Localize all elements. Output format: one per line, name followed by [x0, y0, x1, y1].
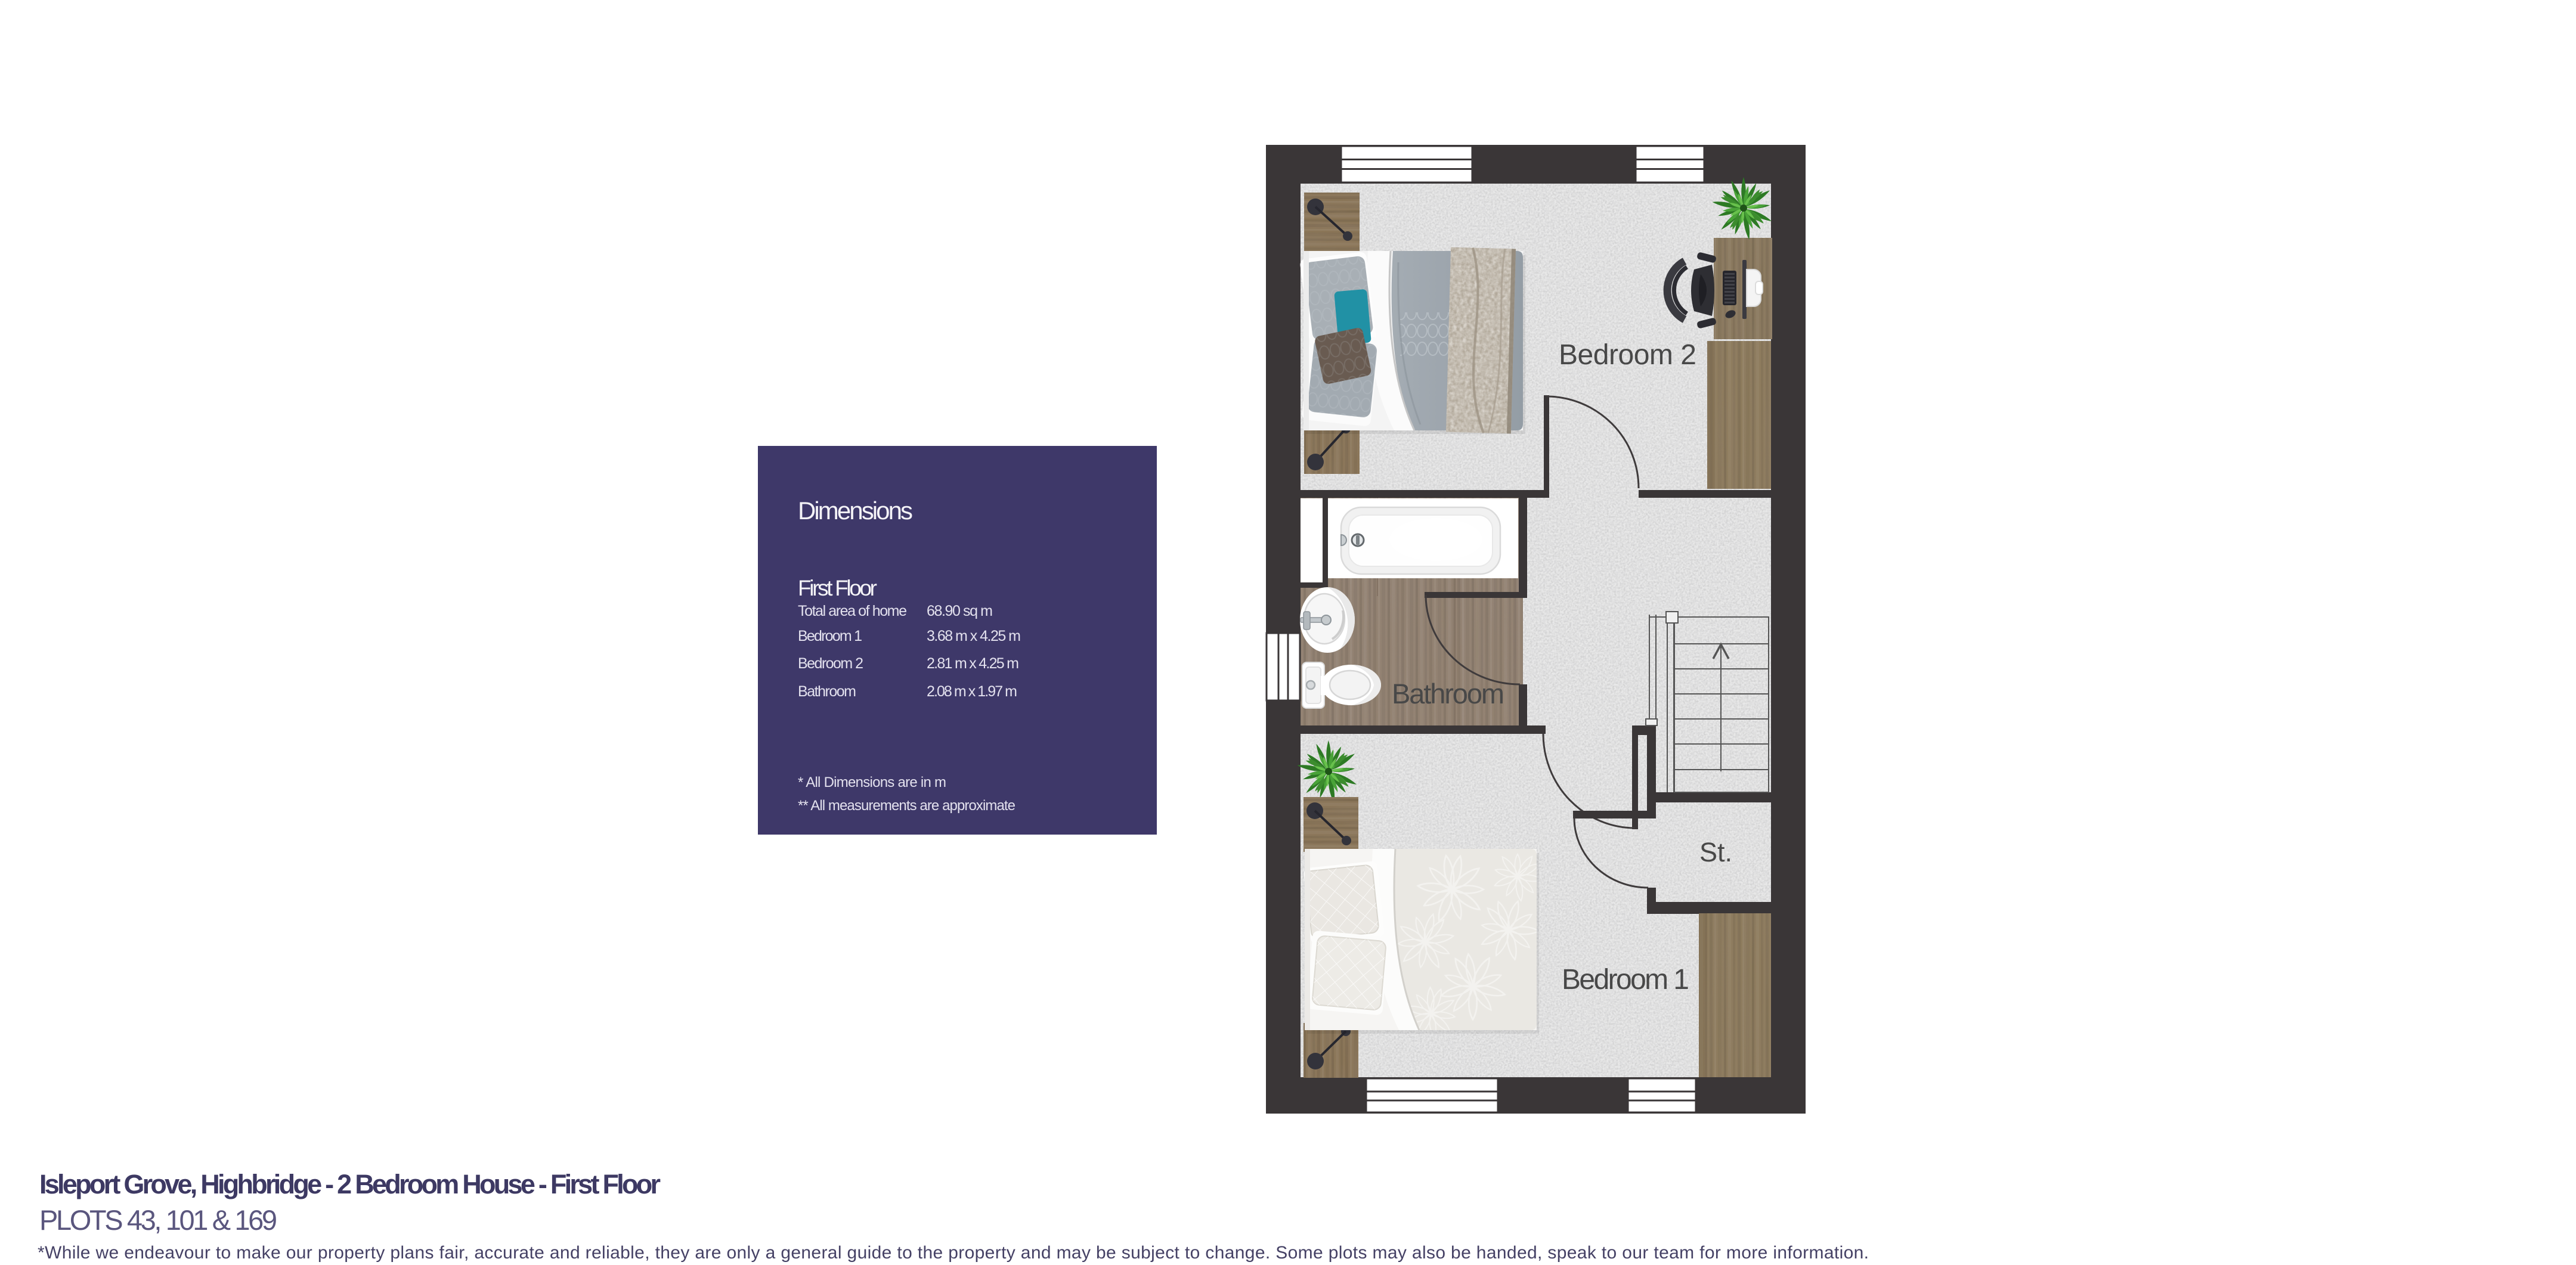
- svg-text:Total area of home: Total area of home: [798, 603, 907, 619]
- svg-text:Dimensions: Dimensions: [798, 497, 913, 525]
- svg-text:2.08 m x 1.97 m: 2.08 m x 1.97 m: [927, 683, 1017, 700]
- svg-text:Isleport Grove, Highbridge - 2: Isleport Grove, Highbridge - 2 Bedroom H…: [39, 1169, 661, 1199]
- svg-text:2.81 m x 4.25 m: 2.81 m x 4.25 m: [927, 655, 1019, 672]
- svg-text:Bathroom: Bathroom: [1392, 678, 1504, 709]
- svg-text:Bedroom 2: Bedroom 2: [1559, 339, 1696, 371]
- svg-text:First Floor: First Floor: [798, 576, 877, 600]
- svg-text:3.68 m x 4.25 m: 3.68 m x 4.25 m: [927, 628, 1021, 644]
- svg-text:*While we endeavour to make ou: *While we endeavour to make our property…: [38, 1243, 1869, 1263]
- svg-text:** All measurements are approx: ** All measurements are approximate: [798, 798, 1015, 814]
- svg-text:Bedroom 2: Bedroom 2: [798, 655, 863, 672]
- svg-text:Bedroom 1: Bedroom 1: [1562, 964, 1689, 996]
- svg-text:PLOTS 43, 101 & 169: PLOTS 43, 101 & 169: [39, 1204, 277, 1236]
- svg-text:Bathroom: Bathroom: [798, 683, 856, 700]
- svg-text:Bedroom 1: Bedroom 1: [798, 628, 862, 644]
- svg-text:68.90 sq m: 68.90 sq m: [927, 603, 993, 619]
- svg-text:St.: St.: [1699, 837, 1732, 867]
- svg-text:* All Dimensions are in m: * All Dimensions are in m: [798, 774, 946, 790]
